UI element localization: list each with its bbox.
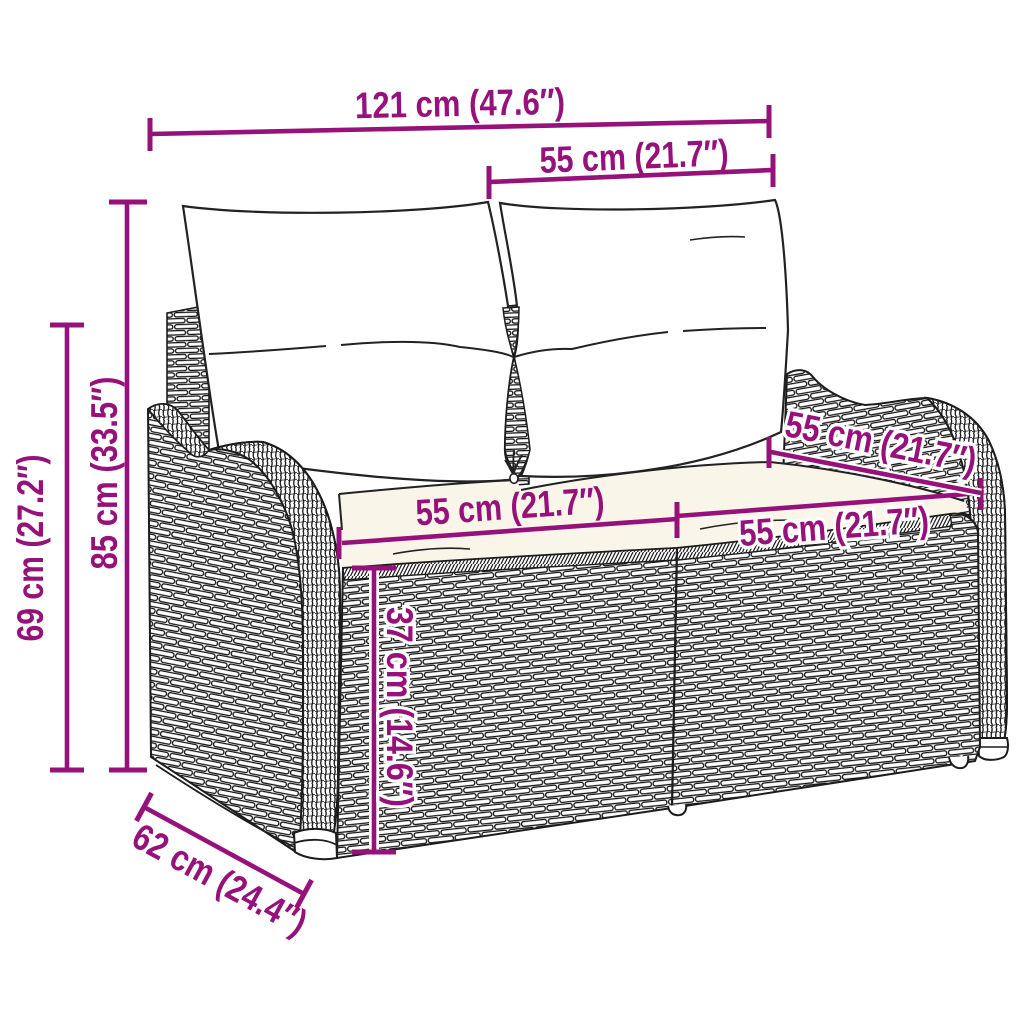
svg-text:55 cm (21.7″): 55 cm (21.7″) (539, 132, 730, 181)
svg-text:37 cm (14.6″): 37 cm (14.6″) (379, 607, 420, 807)
svg-text:69 cm (27.2″): 69 cm (27.2″) (10, 455, 51, 642)
svg-text:85 cm (33.5″): 85 cm (33.5″) (84, 377, 125, 570)
svg-text:121 cm (47.6″): 121 cm (47.6″) (355, 81, 566, 126)
